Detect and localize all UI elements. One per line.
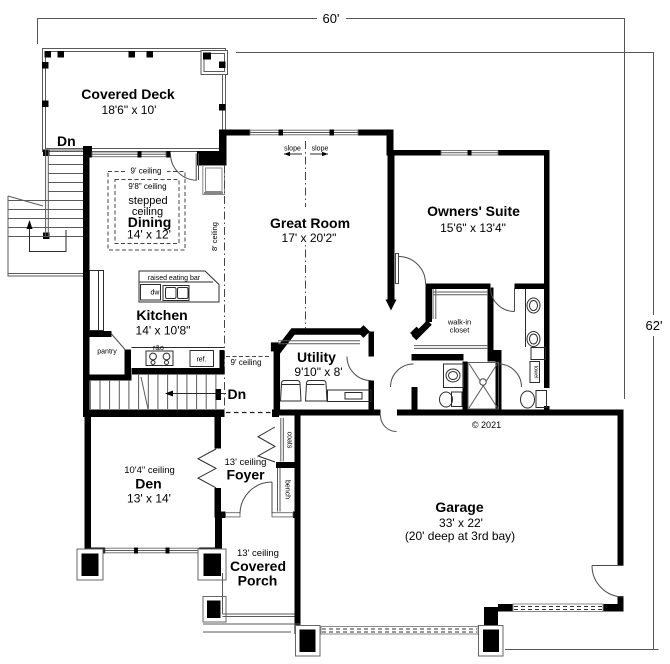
svg-text:towel: towel — [533, 366, 539, 379]
svg-text:8' ceiling: 8' ceiling — [210, 222, 219, 251]
svg-text:9' ceiling: 9' ceiling — [231, 358, 262, 367]
svg-text:closet: closet — [450, 326, 471, 335]
svg-text:9'8" ceiling: 9'8" ceiling — [128, 182, 166, 191]
svg-text:17' x 20'2": 17' x 20'2" — [282, 231, 337, 245]
svg-text:Owners' Suite: Owners' Suite — [427, 203, 520, 219]
svg-text:coats: coats — [286, 432, 293, 449]
svg-text:13' x 14': 13' x 14' — [127, 492, 171, 506]
svg-text:14' x 12': 14' x 12' — [127, 228, 171, 242]
svg-text:bench: bench — [284, 480, 291, 499]
svg-text:pantry: pantry — [97, 349, 117, 356]
svg-text:slope: slope — [312, 146, 329, 153]
svg-text:raised eating bar: raised eating bar — [148, 275, 201, 282]
svg-text:33' x 22': 33' x 22' — [439, 516, 483, 530]
svg-text:ref.: ref. — [196, 357, 206, 364]
svg-text:Dn: Dn — [57, 133, 76, 149]
svg-text:Kitchen: Kitchen — [136, 307, 187, 323]
svg-text:Covered Deck: Covered Deck — [81, 86, 175, 102]
svg-text:18'6" x 10': 18'6" x 10' — [102, 103, 157, 117]
svg-text:© 2021: © 2021 — [472, 420, 501, 430]
svg-text:Garage: Garage — [435, 499, 483, 515]
svg-text:60': 60' — [323, 11, 340, 26]
svg-text:Utility: Utility — [297, 349, 336, 365]
svg-text:9'10" x 8': 9'10" x 8' — [294, 365, 342, 379]
svg-text:Great Room: Great Room — [270, 215, 350, 231]
svg-text:15'6" x 13'4": 15'6" x 13'4" — [440, 221, 506, 235]
svg-text:Porch: Porch — [238, 573, 278, 589]
svg-text:Den: Den — [135, 476, 161, 492]
svg-text:10'4" ceiling: 10'4" ceiling — [124, 465, 175, 476]
svg-text:Dn: Dn — [228, 386, 247, 402]
svg-text:62': 62' — [646, 318, 663, 333]
svg-text:dw: dw — [151, 290, 161, 297]
svg-text:Foyer: Foyer — [226, 467, 265, 483]
svg-text:9' ceiling: 9' ceiling — [131, 167, 162, 176]
svg-text:r&o: r&o — [153, 345, 164, 352]
svg-text:slope: slope — [284, 146, 301, 153]
svg-text:14' x 10'8": 14' x 10'8" — [136, 324, 191, 338]
svg-text:(20' deep at 3rd bay): (20' deep at 3rd bay) — [405, 529, 515, 543]
